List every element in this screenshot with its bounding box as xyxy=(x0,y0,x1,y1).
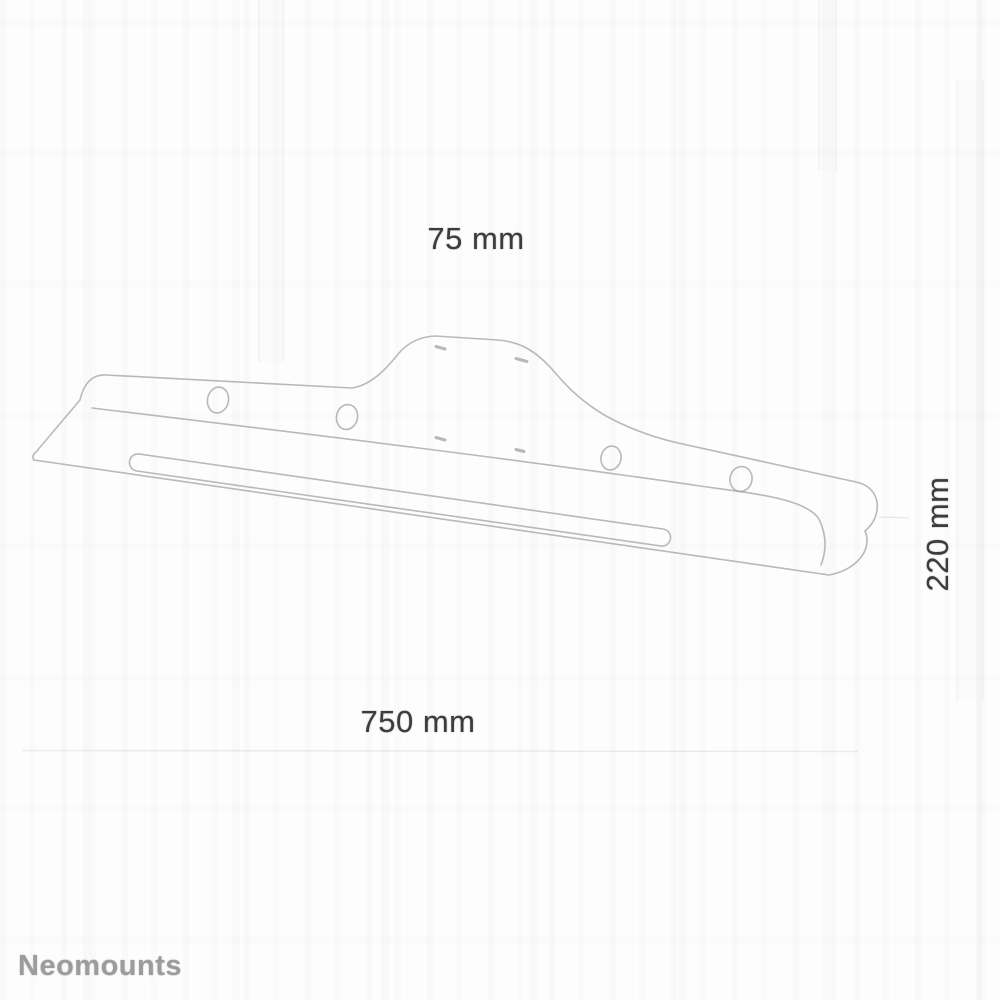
mounting-hole-3 xyxy=(599,444,624,472)
dimension-label-width: 750 mm xyxy=(353,705,483,739)
dimension-line-width xyxy=(22,751,858,752)
vesa-screw-slot-1 xyxy=(436,347,445,350)
bracket-slot xyxy=(129,454,670,546)
product-line-drawing xyxy=(0,0,1000,1000)
mounting-hole-2 xyxy=(334,403,360,432)
mounting-hole-4 xyxy=(728,464,755,493)
bracket-fold-line xyxy=(92,408,825,565)
vesa-screw-slot-4 xyxy=(516,450,524,452)
dimension-label-depth: 220 mm xyxy=(921,469,957,599)
brand-logo: Neomounts xyxy=(18,950,182,983)
vesa-screw-slot-3 xyxy=(436,438,445,441)
vesa-screw-slot-2 xyxy=(516,359,527,362)
bracket-outline xyxy=(33,336,877,575)
diagram-canvas: 75 mm 220 mm 750 mm Neomounts xyxy=(0,0,1000,1000)
dimension-tick-depth xyxy=(879,517,909,518)
dimension-label-vesa: 75 mm xyxy=(421,222,531,256)
mounting-hole-1 xyxy=(205,385,231,415)
